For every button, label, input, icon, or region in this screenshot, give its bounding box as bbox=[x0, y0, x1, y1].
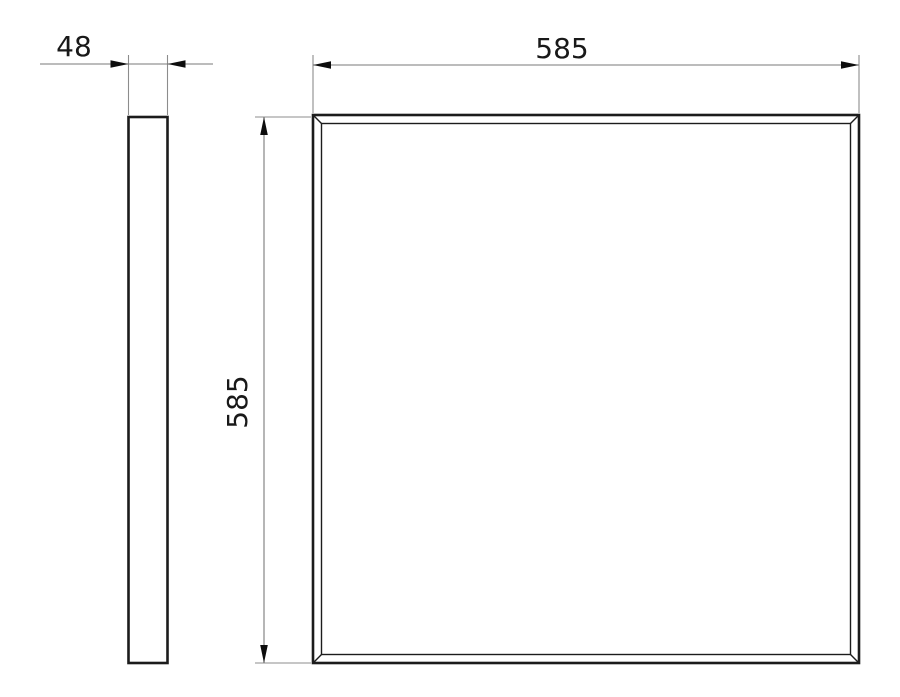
technical-drawing-page: 48 585 585 bbox=[0, 0, 900, 697]
dimension-side-thickness: 48 bbox=[40, 30, 213, 115]
arrowhead-pointing-left bbox=[168, 60, 186, 68]
arrowhead-pointing-up bbox=[260, 117, 268, 135]
arrowhead-pointing-right bbox=[111, 60, 129, 68]
side-view bbox=[129, 117, 168, 663]
dimension-front-width: 585 bbox=[313, 32, 859, 113]
dimension-label-front-width: 585 bbox=[535, 32, 588, 65]
front-view bbox=[313, 115, 859, 663]
arrowhead-pointing-right bbox=[841, 61, 859, 69]
arrowhead-pointing-down bbox=[260, 645, 268, 663]
side-view-profile bbox=[129, 117, 168, 663]
dimension-label-front-height: 585 bbox=[221, 375, 254, 428]
dimension-front-height: 585 bbox=[221, 117, 311, 663]
front-view-outer-frame bbox=[313, 115, 859, 663]
technical-drawing-canvas: 48 585 585 bbox=[0, 0, 900, 697]
arrowhead-pointing-left bbox=[313, 61, 331, 69]
dimension-label-side-thickness: 48 bbox=[56, 30, 92, 63]
